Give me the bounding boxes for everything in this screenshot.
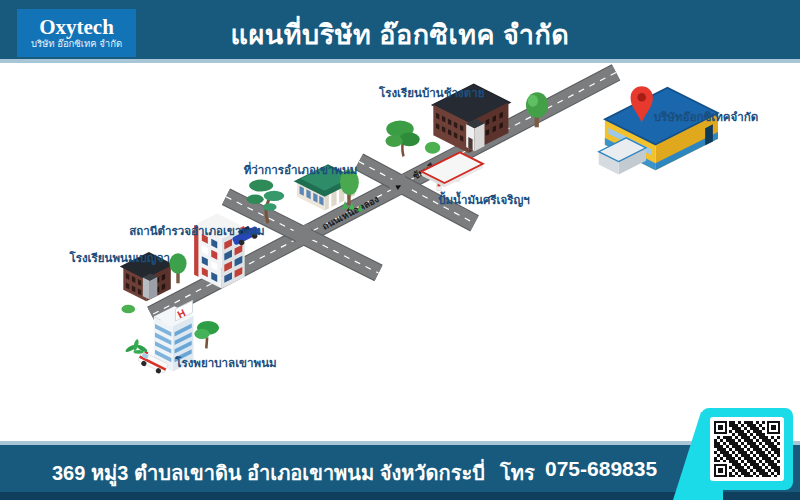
tree-icon xyxy=(194,321,219,348)
gas-station-label: ปั้มน้ำมันศรีเจริญฯ xyxy=(438,191,530,207)
map-illustration: ถนนเหนือคลอง ชัยบุรี xyxy=(0,63,800,441)
page-title: แผนที่บริษัท อ๊อกซิเทค จำกัด xyxy=(0,13,800,56)
company-label: บริษัทอ๊อกซิเทคจำกัด xyxy=(654,110,759,123)
palm-icon xyxy=(125,339,149,354)
school-phanom-bencha-label: โรงเรียนพนมเบญจา xyxy=(68,250,169,265)
phone-label: โทร xyxy=(500,457,535,489)
company-building xyxy=(599,86,718,174)
bush-icon xyxy=(121,305,135,314)
district-office-label: ที่ว่าการอำเภอเขาพนม xyxy=(244,161,358,176)
header-bar: Oxytech บริษัท อ๊อกซิเทค จำกัด แผนที่บริ… xyxy=(0,0,800,59)
phone-number: 075-689835 xyxy=(545,457,657,481)
tree-icon xyxy=(169,253,186,283)
qr-badge xyxy=(665,400,800,500)
gas-station xyxy=(422,152,483,190)
qr-code-icon xyxy=(714,421,780,477)
tree-icon xyxy=(385,120,440,156)
police-station-label: สถานีตำรวจอำเภอเขาพนม xyxy=(129,224,264,237)
school-chang-tai-label: โรงเรียนบ้านช้างตาย xyxy=(378,85,485,99)
address-text: 369 หมู่3 ตำบลเขาดิน อำเภอเขาพนม จังหวัด… xyxy=(52,457,485,489)
poster: Oxytech บริษัท อ๊อกซิเทค จำกัด แผนที่บริ… xyxy=(0,0,800,500)
hospital-label: โรงพยาบาลเขาพนม xyxy=(174,355,276,369)
map-area: ถนนเหนือคลอง ชัยบุรี xyxy=(0,63,800,441)
